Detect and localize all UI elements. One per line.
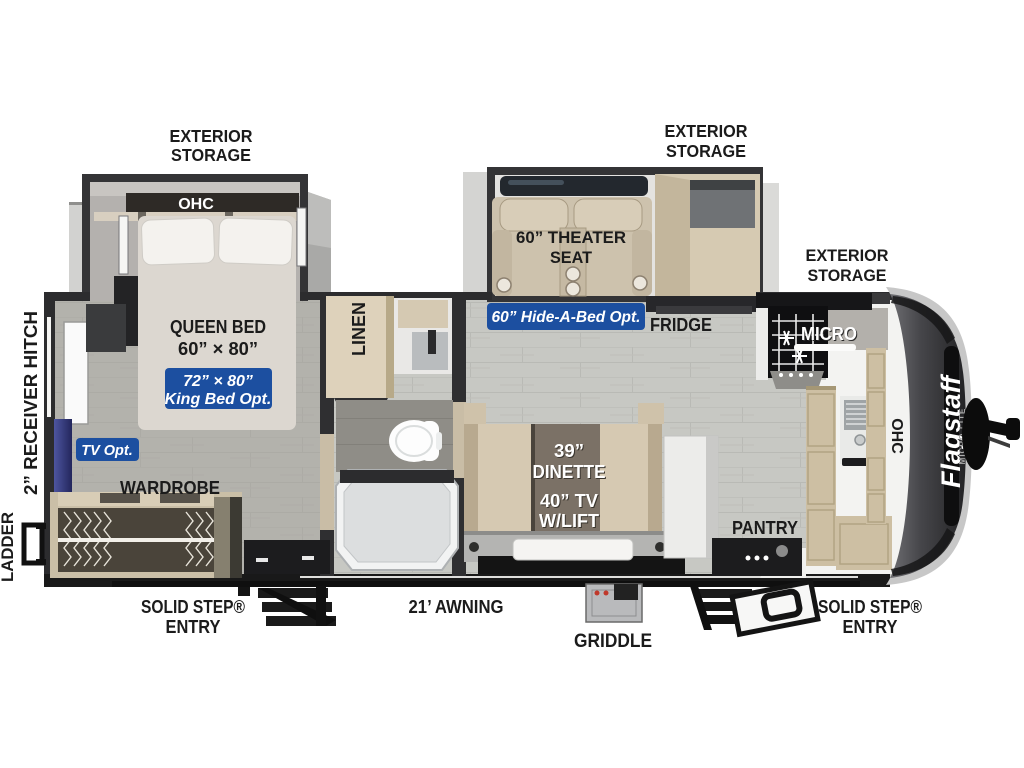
svg-text:EXTERIOR: EXTERIOR	[170, 126, 253, 146]
svg-text:2” RECEIVER HITCH: 2” RECEIVER HITCH	[21, 311, 41, 495]
svg-text:WARDROBE: WARDROBE	[120, 478, 220, 498]
svg-text:DINETTE: DINETTE	[533, 462, 606, 482]
svg-text:STORAGE: STORAGE	[808, 266, 887, 285]
svg-text:LADDER: LADDER	[0, 512, 17, 582]
svg-text:LINEN: LINEN	[349, 302, 369, 356]
svg-text:72” × 80”: 72” × 80”	[183, 373, 253, 390]
svg-text:SOLID STEP®: SOLID STEP®	[141, 597, 245, 617]
svg-text:EXTERIOR: EXTERIOR	[665, 121, 748, 141]
svg-text:EXTERIOR: EXTERIOR	[806, 246, 889, 265]
svg-text:60” × 80”: 60” × 80”	[178, 338, 258, 359]
svg-text:ENTRY: ENTRY	[166, 617, 221, 637]
svg-text:STORAGE: STORAGE	[666, 141, 746, 161]
svg-text:GRIDDLE: GRIDDLE	[574, 631, 652, 652]
svg-text:TV Opt.: TV Opt.	[81, 443, 133, 459]
svg-text:FRIDGE: FRIDGE	[650, 315, 712, 335]
svg-text:40” TV: 40” TV	[540, 491, 598, 511]
svg-text:King Bed Opt.: King Bed Opt.	[165, 391, 272, 408]
svg-text:60” Hide-A-Bed Opt.: 60” Hide-A-Bed Opt.	[492, 309, 641, 326]
svg-text:ENTRY: ENTRY	[843, 617, 898, 637]
svg-text:STORAGE: STORAGE	[171, 145, 251, 165]
svg-text:60” THEATER: 60” THEATER	[516, 228, 626, 247]
svg-text:SOLID STEP®: SOLID STEP®	[818, 597, 922, 617]
svg-text:39”: 39”	[554, 441, 584, 461]
svg-text:W/LIFT: W/LIFT	[539, 511, 599, 531]
svg-text:SEAT: SEAT	[550, 248, 593, 267]
svg-text:MICRO: MICRO	[801, 324, 857, 344]
svg-text:QUEEN BED: QUEEN BED	[170, 317, 266, 337]
svg-text:21’ AWNING: 21’ AWNING	[409, 597, 504, 617]
svg-text:OHC: OHC	[888, 418, 905, 454]
svg-text:OHC: OHC	[178, 196, 214, 213]
svg-text:PANTRY: PANTRY	[732, 518, 798, 538]
